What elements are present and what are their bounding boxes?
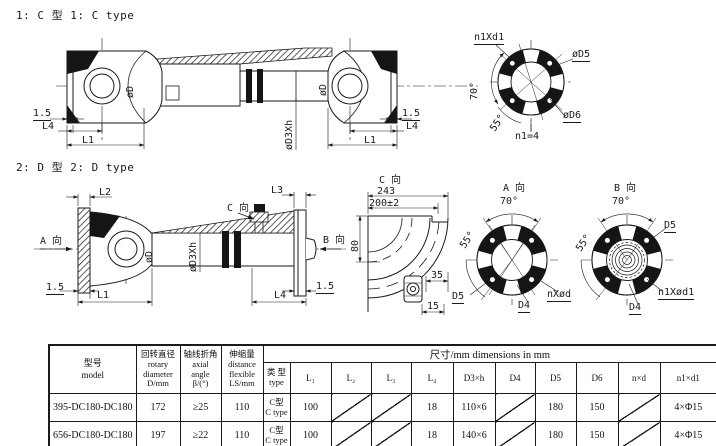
cell-n1xd1: 4×Φ15 (660, 422, 716, 446)
dim-l1-dtype: L1 (97, 291, 109, 301)
dim-od-dtype: øD (145, 251, 155, 263)
cell-l2-na (331, 422, 371, 446)
flange-d5-callout: øD5 (572, 50, 590, 62)
dim-l1-right: L1 (364, 136, 376, 146)
col-header-l4: L₄ (411, 363, 453, 394)
dim-1-5-right: 1.5 (402, 109, 420, 121)
dim-200: 200±2 (369, 199, 399, 209)
header-model-en: model (50, 370, 136, 381)
dim-15: 15 (427, 302, 439, 312)
view-a-d4-callout: D4 (518, 301, 530, 313)
col-header-d3h: D3×h (453, 363, 495, 394)
col-header-model: 型号 model (49, 345, 136, 394)
cell-l3-na (371, 394, 411, 422)
cell-type-en: C type (264, 408, 290, 418)
cell-axial: ≥25 (180, 394, 221, 422)
col-header-rotary-diameter: 回转直径 rotary diameter D/mm (136, 345, 180, 394)
view-b-title: B 向 (614, 184, 636, 194)
dim-od3h: øD3Xh (285, 120, 295, 150)
cell-d5: 180 (535, 422, 576, 446)
view-c-arrow-label: C 向 (227, 204, 249, 214)
flange-angle-70: 70° (470, 82, 480, 100)
cell-axial: ≥22 (180, 422, 221, 446)
view-b-angle-70: 70° (612, 197, 630, 207)
view-c-section (356, 192, 448, 315)
cell-d6: 150 (576, 394, 618, 422)
header-axial-unit: β/(°) (181, 379, 221, 389)
cell-nxd-na (618, 394, 660, 422)
cell-d4-na (495, 422, 535, 446)
cell-l2-na (331, 394, 371, 422)
view-a-flange (466, 214, 558, 305)
dim-1-5-left: 1.5 (33, 109, 51, 121)
flange-bolt-callout: n1Xd1 (474, 33, 504, 45)
cell-model: 395-DC180-DC180 (49, 394, 136, 422)
header-rotary-unit: D/mm (137, 379, 180, 389)
dim-l1-left: L1 (82, 136, 94, 146)
dim-od-right: øD (319, 84, 329, 96)
col-header-flexible: 伸缩量 distance flexible LS/mm (221, 345, 263, 394)
dim-80: 80 (351, 240, 361, 252)
c-type-drawing (50, 38, 478, 150)
span-header-dimensions: 尺寸/mm dimensions in mm (263, 345, 716, 363)
col-header-d4: D4 (495, 363, 535, 394)
spec-table: 型号 model 回转直径 rotary diameter D/mm 轴线折角 … (48, 344, 716, 446)
cell-rotary: 172 (136, 394, 180, 422)
dim-od3h-dtype: øD3Xh (189, 242, 199, 272)
view-b-d5-callout: D5 (664, 221, 676, 233)
drawing-sheet: 1: C 型 1: C type øD øD øD3Xh 1.5 L4 L1 1… (0, 0, 716, 446)
cell-n1xd1: 4×Φ15 (660, 394, 716, 422)
cell-d3h: 140×6 (453, 422, 495, 446)
cell-l1: 100 (290, 422, 331, 446)
cell-type: C型 C type (263, 394, 290, 422)
dim-od-left: øD (126, 86, 136, 98)
dim-1-5-dtype-left: 1.5 (46, 283, 64, 295)
cell-l4: 18 (411, 394, 453, 422)
view-b-arrow-label: B 向 (323, 236, 345, 246)
col-header-l1: L₁ (290, 363, 331, 394)
header-model-cn: 型号 (50, 358, 136, 369)
view-a-angle-70: 70° (500, 197, 518, 207)
cell-flexible: 110 (221, 422, 263, 446)
header-flexible-unit: LS/mm (222, 379, 263, 389)
cell-d4-na (495, 394, 535, 422)
col-header-l3: L₃ (371, 363, 411, 394)
cell-flexible: 110 (221, 394, 263, 422)
dim-35: 35 (431, 271, 443, 281)
cell-l4: 18 (411, 422, 453, 446)
cell-d3h: 110×6 (453, 394, 495, 422)
cell-model: 656-DC180-DC180 (49, 422, 136, 446)
view-b-d4-callout: D4 (629, 303, 641, 315)
cell-rotary: 197 (136, 422, 180, 446)
table-row: 656-DC180-DC180 197 ≥22 110 C型 C type 10… (49, 422, 716, 446)
header-type-en: type (264, 378, 290, 388)
flange-bolt-count: n1=4 (515, 132, 539, 142)
dim-l4-right: L4 (406, 122, 418, 132)
flange-d6-callout: øD6 (563, 111, 581, 123)
section-label-c-type: 1: C 型 1: C type (16, 10, 134, 21)
cell-type-en: C type (264, 436, 290, 446)
dim-1-5-dtype-right: 1.5 (316, 282, 334, 294)
col-header-n1xd1: n1×d1 (660, 363, 716, 394)
view-a-d5-callout: D5 (452, 292, 464, 304)
section-label-d-type: 2: D 型 2: D type (16, 162, 134, 173)
view-c-title: C 向 (379, 176, 401, 186)
dim-l4-left: L4 (42, 122, 54, 132)
view-a-arrow-label: A 向 (40, 237, 62, 247)
col-header-l2: L₂ (331, 363, 371, 394)
cell-type: C型 C type (263, 422, 290, 446)
cell-l3-na (371, 422, 411, 446)
col-header-axial-angle: 轴线折角 axial angle β/(°) (180, 345, 221, 394)
cell-d6: 150 (576, 422, 618, 446)
cell-d5: 180 (535, 394, 576, 422)
view-a-bolt-callout: nXød (547, 290, 571, 302)
col-header-d6: D6 (576, 363, 618, 394)
col-header-d5: D5 (535, 363, 576, 394)
cell-nxd-na (618, 422, 660, 446)
table-row: 395-DC180-DC180 172 ≥25 110 C型 C type 10… (49, 394, 716, 422)
dim-243: 243 (377, 187, 395, 197)
cell-l1: 100 (290, 394, 331, 422)
view-a-title: A 向 (503, 184, 525, 194)
col-header-nxd: n×d (618, 363, 660, 394)
dim-l3: L3 (271, 186, 283, 196)
col-header-type: 类 型 type (263, 363, 290, 394)
dim-l2: L2 (99, 188, 111, 198)
view-b-bolt-callout: n1Xød1 (658, 288, 694, 300)
dim-l4-dtype: L4 (274, 291, 286, 301)
